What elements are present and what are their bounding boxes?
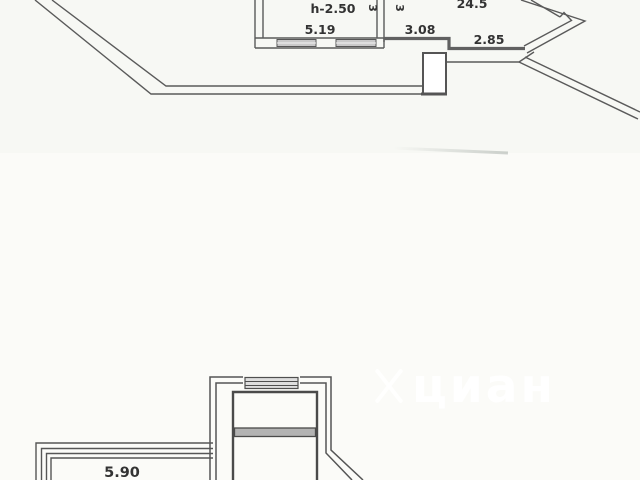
bay-inner-upper xyxy=(531,0,560,17)
label-balcony-width: 5.90 xyxy=(104,465,140,480)
bay-outer xyxy=(521,0,585,53)
label-ceiling-height: h-2.50 xyxy=(311,1,356,16)
right-balcony-diagonal-outer xyxy=(519,62,638,119)
floorplan-image: h-2.50 5.19 3 3 24.5 3.08 2.85 xyxy=(0,0,640,480)
cian-logo-text: циан xyxy=(412,363,556,410)
room-divider-wall xyxy=(235,428,316,437)
label-hall-width: 3.08 xyxy=(405,22,436,37)
label-area: 24.5 xyxy=(457,0,488,11)
window-lower xyxy=(245,378,298,389)
floor-plan-upper: h-2.50 5.19 3 3 24.5 3.08 2.85 xyxy=(0,0,640,160)
balcony-pier xyxy=(421,53,447,94)
label-bay-width: 2.85 xyxy=(474,32,505,47)
label-room-width: 5.19 xyxy=(305,22,336,37)
windows xyxy=(277,40,376,47)
cian-logo-mark xyxy=(374,362,404,410)
cian-watermark: циан xyxy=(374,362,556,410)
label-vertical-left: 3 xyxy=(366,4,379,12)
pier-rect xyxy=(423,53,446,94)
right-balcony-diagonal-inner xyxy=(525,57,640,112)
balcony-inner-edge xyxy=(446,52,534,62)
window-lower-frame xyxy=(245,378,298,389)
bay-corner xyxy=(521,0,585,53)
dimension-labels-lower: 5.90 xyxy=(104,465,140,480)
room-left-wall xyxy=(255,0,263,38)
label-vertical-right: 3 xyxy=(393,4,406,12)
balcony-outline xyxy=(35,0,640,119)
